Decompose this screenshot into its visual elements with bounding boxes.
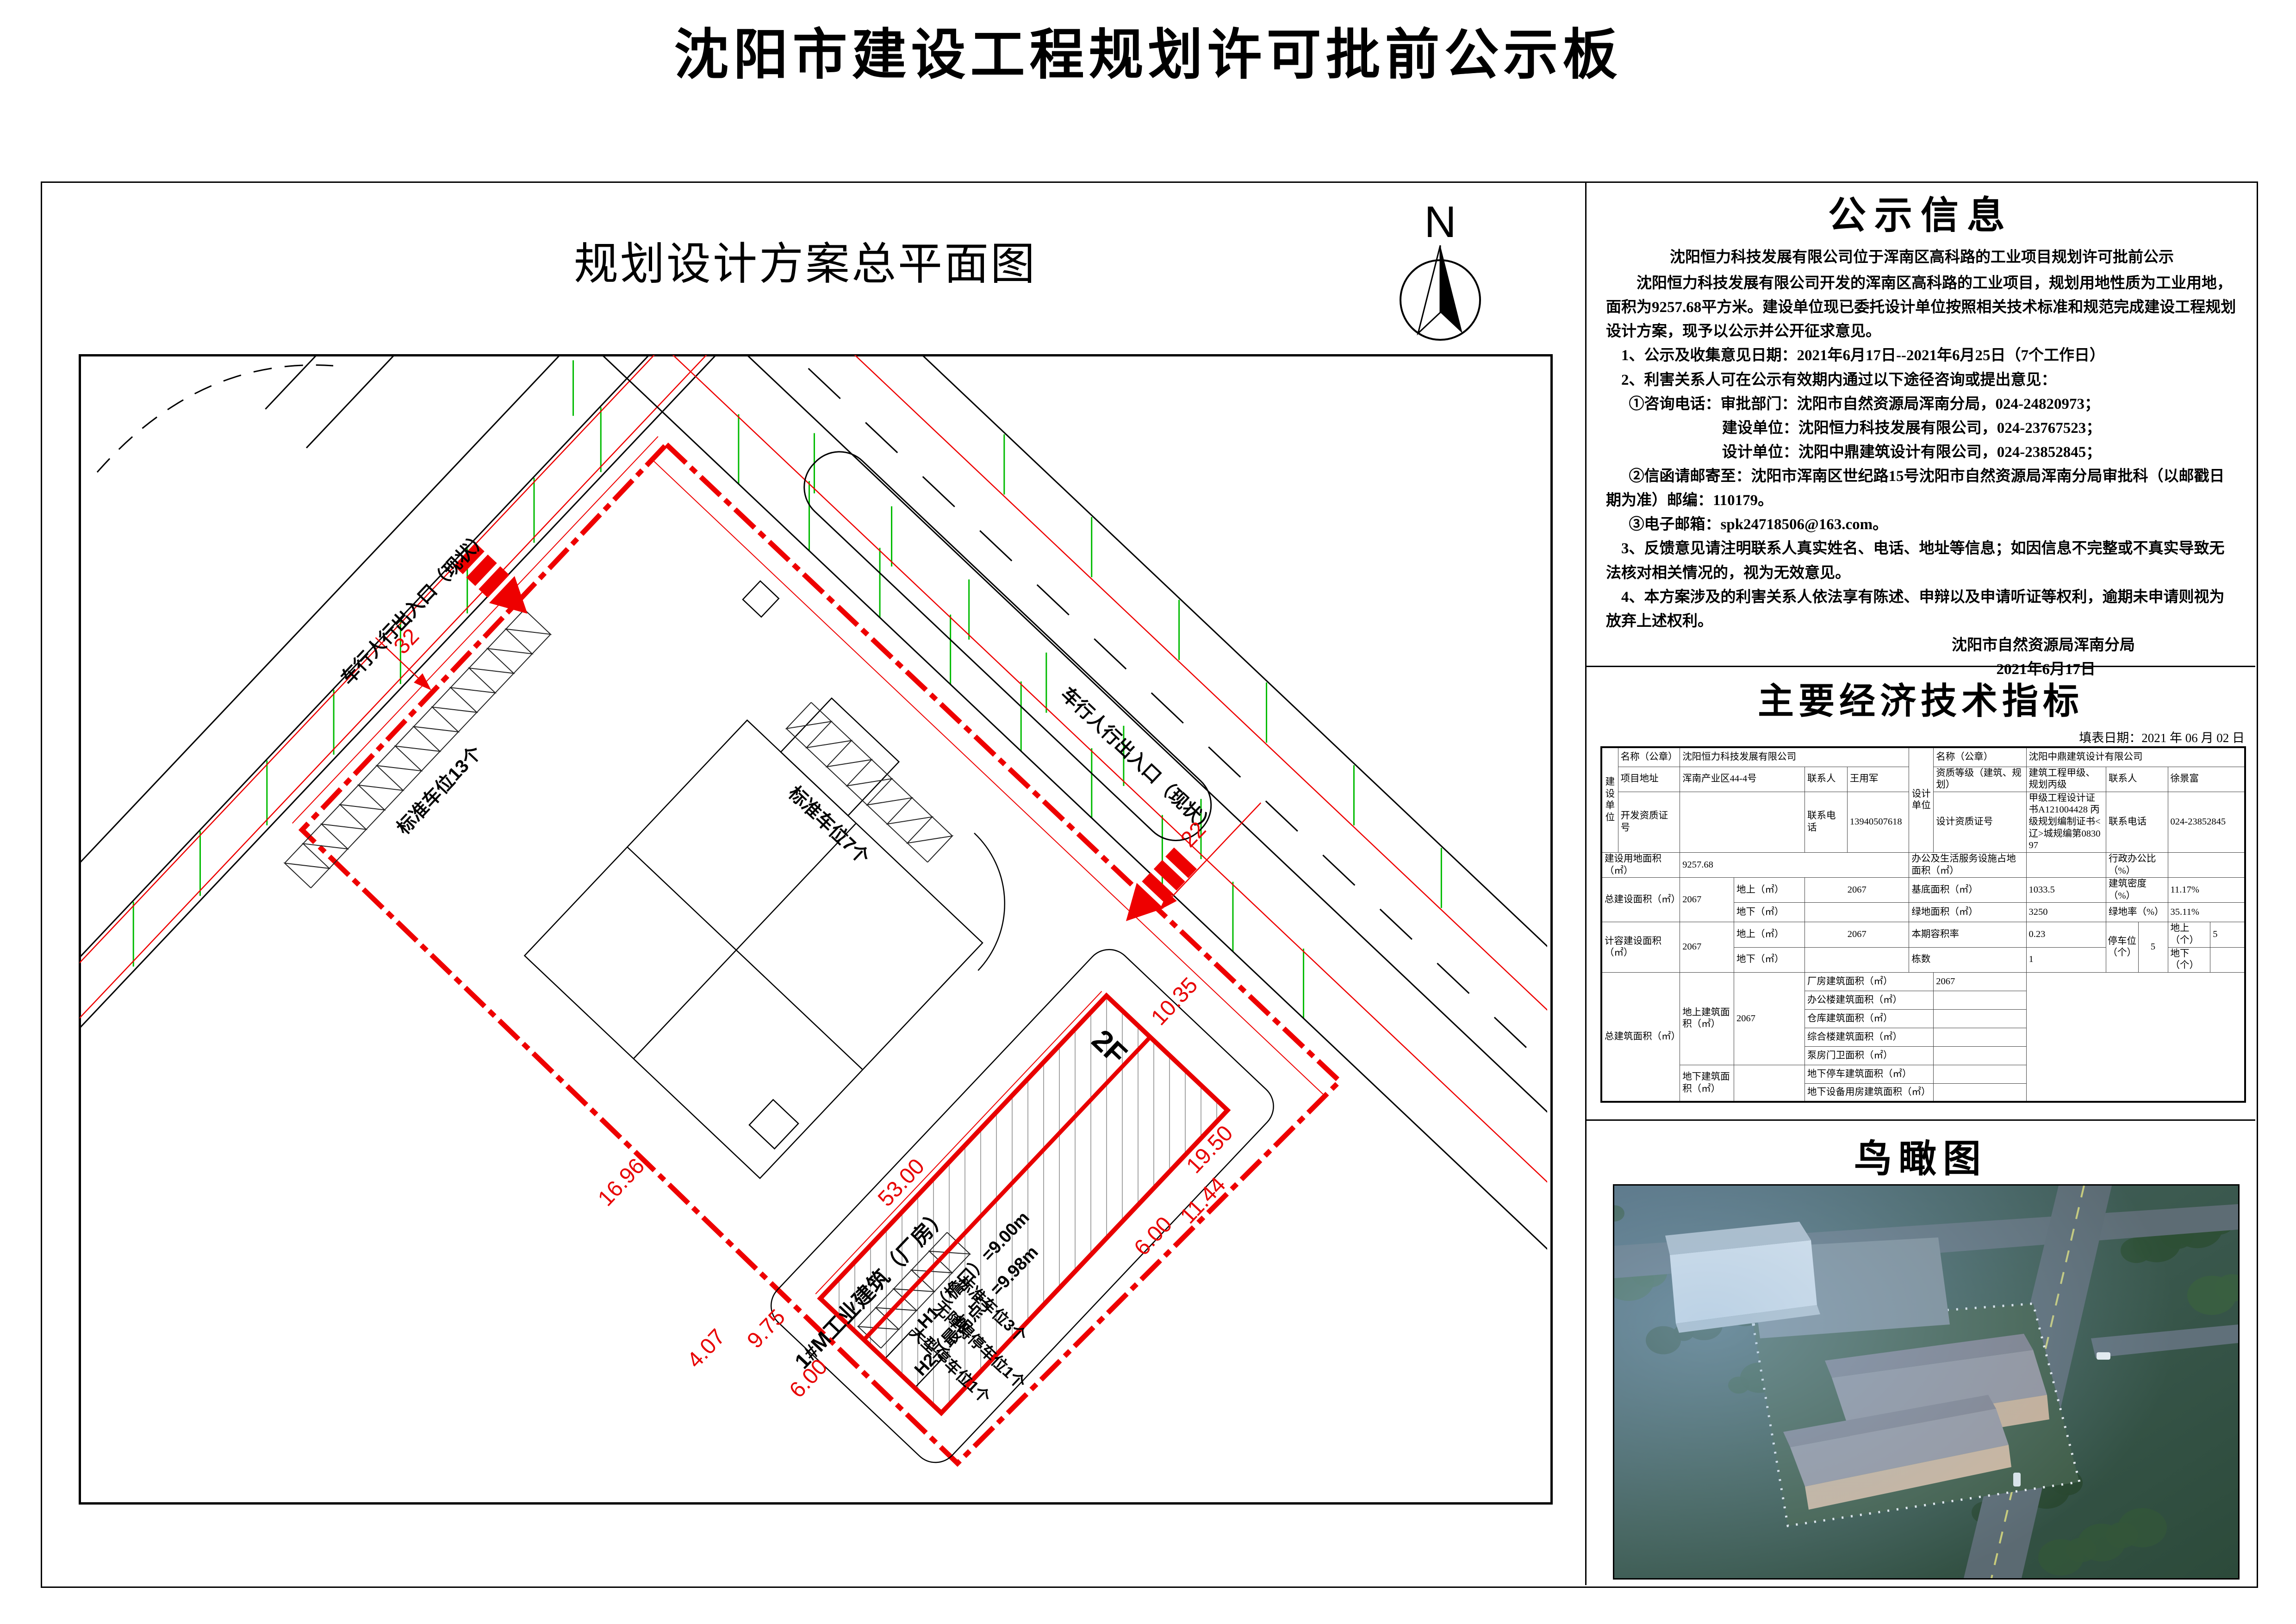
cell	[2168, 852, 2245, 877]
cell: 地下设备用房建筑面积（㎡）	[1805, 1083, 1934, 1102]
panel-divider-2	[1585, 1119, 2255, 1121]
cell-designer-group: 设计单位	[1909, 747, 1934, 852]
cell: 名称（公章）	[1618, 747, 1680, 767]
cell: 浑南产业区44-4号	[1680, 767, 1805, 792]
dim-407: 4.07	[683, 1324, 730, 1373]
cell	[1680, 792, 1805, 852]
road-northeast	[432, 355, 1547, 1307]
cell: 1	[2026, 947, 2106, 972]
notice-item2a3: 设计单位：沈阳中鼎建筑设计有限公司，024-23852845；	[1606, 440, 2239, 464]
cell: 栋数	[1909, 947, 2026, 972]
cell: 绿地面积（㎡）	[1909, 903, 2026, 922]
cell: 地下（个）	[2168, 947, 2210, 972]
cell: 行政办公比（%）	[2106, 852, 2168, 877]
cell: 13940507618	[1847, 792, 1909, 852]
cell: 名称（公章）	[1934, 747, 2026, 767]
parking7-label: 标准车位7个	[784, 782, 873, 868]
cell: 5	[2138, 922, 2168, 973]
cell: 地上（㎡）	[1734, 922, 1805, 947]
notice-item2b: ②信函请邮寄至：沈阳市浑南区世纪路15号沈阳市自然资源局浑南分局审批科（以邮戳日…	[1606, 464, 2239, 512]
notice-item2c: ③电子邮箱：spk24718506@163.com。	[1606, 512, 2239, 537]
notice-item2: 2、利害关系人可在公示有效期内通过以下途径咨询或提出意见：	[1606, 368, 2239, 392]
cell: 联系人	[1805, 767, 1848, 792]
cell: 本期容积率	[1909, 922, 2026, 947]
cell: 综合楼建筑面积（㎡）	[1805, 1028, 1934, 1046]
cell: 2067	[1805, 878, 1909, 903]
existing-building-cluster	[462, 581, 1070, 1189]
notice-item3: 3、反馈意见请注明联系人真实姓名、电话、地址等信息；如因信息不完整或不真实导致无…	[1606, 537, 2239, 585]
cell: 5	[2210, 922, 2245, 947]
cell: 建设用地面积（㎡）	[1601, 852, 1680, 877]
cell: 沈阳中鼎建筑设计有限公司	[2026, 747, 2245, 767]
entrance-arrow-east	[1113, 845, 1199, 934]
cell: 2067	[1934, 972, 2026, 991]
north-arrow-icon: N	[1394, 194, 1487, 361]
cell: 地下（㎡）	[1734, 947, 1805, 972]
cell: 徐景富	[2168, 767, 2245, 792]
cell: 地上（㎡）	[1734, 878, 1805, 903]
notice-body: 沈阳恒力科技发展有限公司开发的浑南区高科路的工业项目，规划用地性质为工业用地，面…	[1606, 271, 2239, 681]
cell: 35.11%	[2168, 903, 2245, 922]
cell: 绿地率（%）	[2106, 903, 2168, 922]
cell: 3250	[2026, 903, 2106, 922]
cell: 厂房建筑面积（㎡）	[1805, 972, 1934, 991]
cell	[2210, 947, 2245, 972]
entrance2-label: 车行人行出入口（现状）	[1057, 684, 1219, 838]
notice-para1: 沈阳恒力科技发展有限公司开发的浑南区高科路的工业项目，规划用地性质为工业用地，面…	[1606, 271, 2239, 344]
cell: 总建设面积（㎡）	[1601, 878, 1680, 922]
cell: 2067	[1805, 922, 1909, 947]
road-northwest	[80, 355, 1176, 1096]
cell	[2026, 852, 2106, 877]
cell: 地下停车建筑面积（㎡）	[1805, 1065, 1934, 1083]
indicators-table: 建设单位 名称（公章） 沈阳恒力科技发展有限公司 设计单位 名称（公章） 沈阳中…	[1600, 746, 2246, 1103]
fill-date-label: 填表日期：	[2079, 731, 2141, 745]
cell: 1033.5	[2026, 878, 2106, 903]
page-title: 沈阳市建设工程规划许可批前公示板	[0, 10, 2296, 89]
cell: 地上建筑面积（㎡）	[1680, 972, 1734, 1065]
cell: 地上（个）	[2168, 922, 2210, 947]
dim-extension-line	[815, 991, 1101, 1294]
column-divider	[1585, 181, 1587, 1585]
cell: 2067	[1680, 878, 1734, 922]
site-plan-title: 规划设计方案总平面图	[491, 228, 1120, 292]
notice-subtitle: 沈阳恒力科技发展有限公司位于浑南区高科路的工业项目规划许可批前公示	[1599, 244, 2245, 267]
aerial-title: 鸟瞰图	[1587, 1128, 2254, 1183]
cell: 计容建设面积（㎡）	[1601, 922, 1680, 973]
cell	[1805, 947, 1909, 972]
aerial-render	[1614, 1186, 2238, 1578]
cell: 甲级工程设计证书A121004428 丙级规划编制证书<辽>城规编第083097	[2026, 792, 2106, 852]
setback-line-ne	[652, 460, 1325, 1097]
indicators-title: 主要经济技术指标	[1587, 672, 2254, 724]
cell: 泵房门卫面积（㎡）	[1805, 1046, 1934, 1065]
cell: 王用军	[1847, 767, 1909, 792]
notice-signer: 沈阳市自然资源局浑南分局	[1606, 633, 2239, 657]
new-building-outline	[820, 996, 1227, 1413]
cell: 2067	[1734, 972, 1805, 1065]
cell: 2067	[1680, 922, 1734, 973]
cell: 仓库建筑面积（㎡）	[1805, 1009, 1934, 1028]
cell	[1934, 1083, 2026, 1102]
cell: 11.17%	[2168, 878, 2245, 903]
notice-panel-title: 公示信息	[1587, 184, 2254, 239]
cell: 建筑密度（%）	[2106, 878, 2168, 903]
cell	[1934, 991, 2026, 1009]
notice-item2a: ①咨询电话：审批部门：沈阳市自然资源局浑南分局，024-24820973；	[1606, 392, 2239, 416]
site-plan-drawing: 2F 1#M工业建筑（厂房） H1（檐口）=9.00m H2（最高点）=9.98…	[80, 355, 1547, 1499]
cell: 总建筑面积（㎡）	[1601, 972, 1680, 1102]
cell: 建筑工程甲级、规划丙级	[2026, 767, 2106, 792]
site-boundary	[295, 444, 1339, 1474]
notice-board: 沈阳市建设工程规划许可批前公示板 规划设计方案总平面图 N	[0, 0, 2296, 1624]
cell: 地下（㎡）	[1734, 903, 1805, 922]
indicators-fill-date: 填表日期：2021 年 06 月 02 日	[1601, 728, 2245, 746]
notice-item4: 4、本方案涉及的利害关系人依法享有陈述、申辩以及申请听证等权利，逾期未申请则视为…	[1606, 585, 2239, 633]
cell: 办公及生活服务设施占地面积（㎡）	[1909, 852, 2026, 877]
aerial-image	[1613, 1184, 2240, 1580]
cell	[1734, 1065, 1805, 1102]
cell: 024-23852845	[2168, 792, 2245, 852]
cell: 0.23	[2026, 922, 2106, 947]
notice-item1: 1、公示及收集意见日期：2021年6月17日--2021年6月25日（7个工作日…	[1606, 344, 2239, 368]
notice-item2a2: 建设单位：沈阳恒力科技发展有限公司，024-23767523；	[1606, 416, 2239, 440]
cell: 设计资质证号	[1934, 792, 2026, 852]
cell	[1934, 1046, 2026, 1065]
cell: 资质等级（建筑、规划）	[1934, 767, 2026, 792]
cell: 联系电话	[2106, 792, 2168, 852]
cell: 9257.68	[1680, 852, 1909, 877]
cell-builder-group: 建设单位	[1601, 747, 1618, 852]
dim-600-bottom: 6.00	[785, 1355, 833, 1403]
cell: 办公楼建筑面积（㎡）	[1805, 991, 1934, 1009]
fill-date-value: 2021 年 06 月 02 日	[2141, 731, 2245, 745]
cell	[1934, 1009, 2026, 1028]
cell: 开发资质证号	[1618, 792, 1680, 852]
cell-empty	[2026, 972, 2245, 1102]
cell: 联系电话	[1805, 792, 1848, 852]
cell: 项目地址	[1618, 767, 1680, 792]
cell: 联系人	[2106, 767, 2168, 792]
dim-1696: 16.96	[593, 1154, 649, 1211]
existing-curb-dashed-arc	[97, 365, 333, 472]
cell: 沈阳恒力科技发展有限公司	[1680, 747, 1909, 767]
cell: 地下建筑面积（㎡）	[1680, 1065, 1734, 1102]
cell: 停车位（个）	[2106, 922, 2138, 973]
north-letter: N	[1424, 197, 1456, 247]
cell	[1934, 1028, 2026, 1046]
road2-centerline-dashed	[523, 355, 1547, 1212]
cell	[1934, 1065, 2026, 1083]
dim-975: 9.75	[742, 1305, 790, 1353]
cell	[1805, 903, 1909, 922]
cell: 基底面积（㎡）	[1909, 878, 2026, 903]
